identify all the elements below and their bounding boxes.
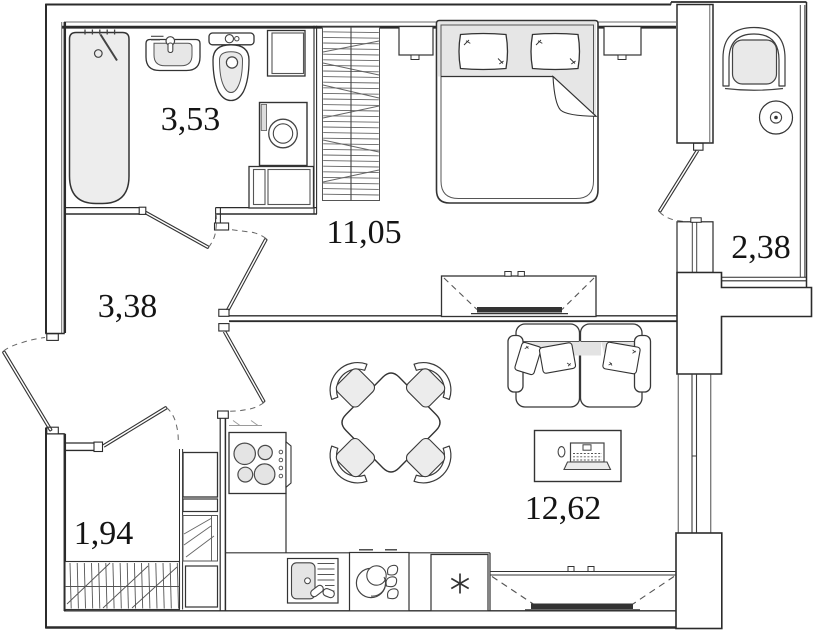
- svg-text:1,94: 1,94: [74, 515, 134, 552]
- svg-text:3,38: 3,38: [98, 288, 158, 325]
- svg-text:2,38: 2,38: [731, 229, 791, 266]
- svg-text:12,62: 12,62: [525, 490, 602, 527]
- svg-text:11,05: 11,05: [326, 214, 401, 251]
- svg-text:3,53: 3,53: [161, 101, 221, 138]
